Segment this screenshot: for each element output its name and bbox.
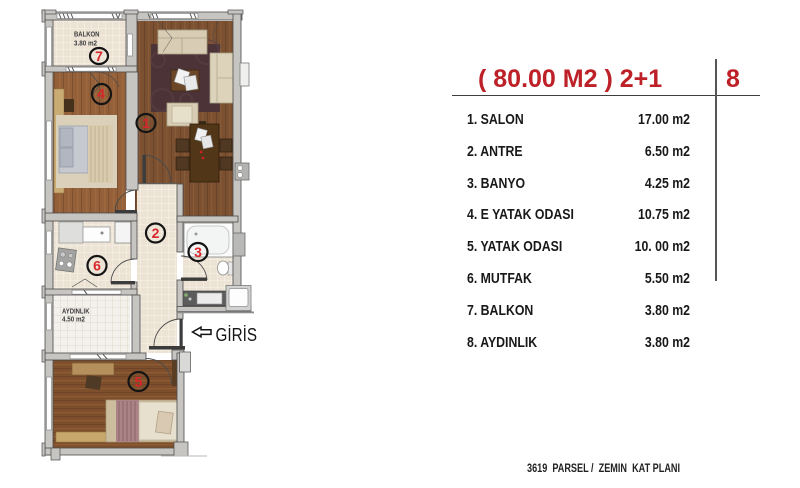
svg-text:AYDINLIK: AYDINLIK <box>62 309 90 316</box>
svg-text:2: 2 <box>152 225 160 241</box>
svg-text:BALKON: BALKON <box>74 32 100 39</box>
svg-text:1: 1 <box>142 115 150 131</box>
svg-text:4.50 m2: 4.50 m2 <box>62 317 85 324</box>
svg-text:5: 5 <box>135 374 143 390</box>
svg-text:GİRİS: GİRİS <box>216 325 258 345</box>
svg-text:4: 4 <box>97 86 105 102</box>
svg-text:7: 7 <box>95 48 103 64</box>
svg-text:3.80 m2: 3.80 m2 <box>74 41 97 48</box>
svg-text:6: 6 <box>93 258 101 274</box>
svg-text:3: 3 <box>194 244 202 260</box>
